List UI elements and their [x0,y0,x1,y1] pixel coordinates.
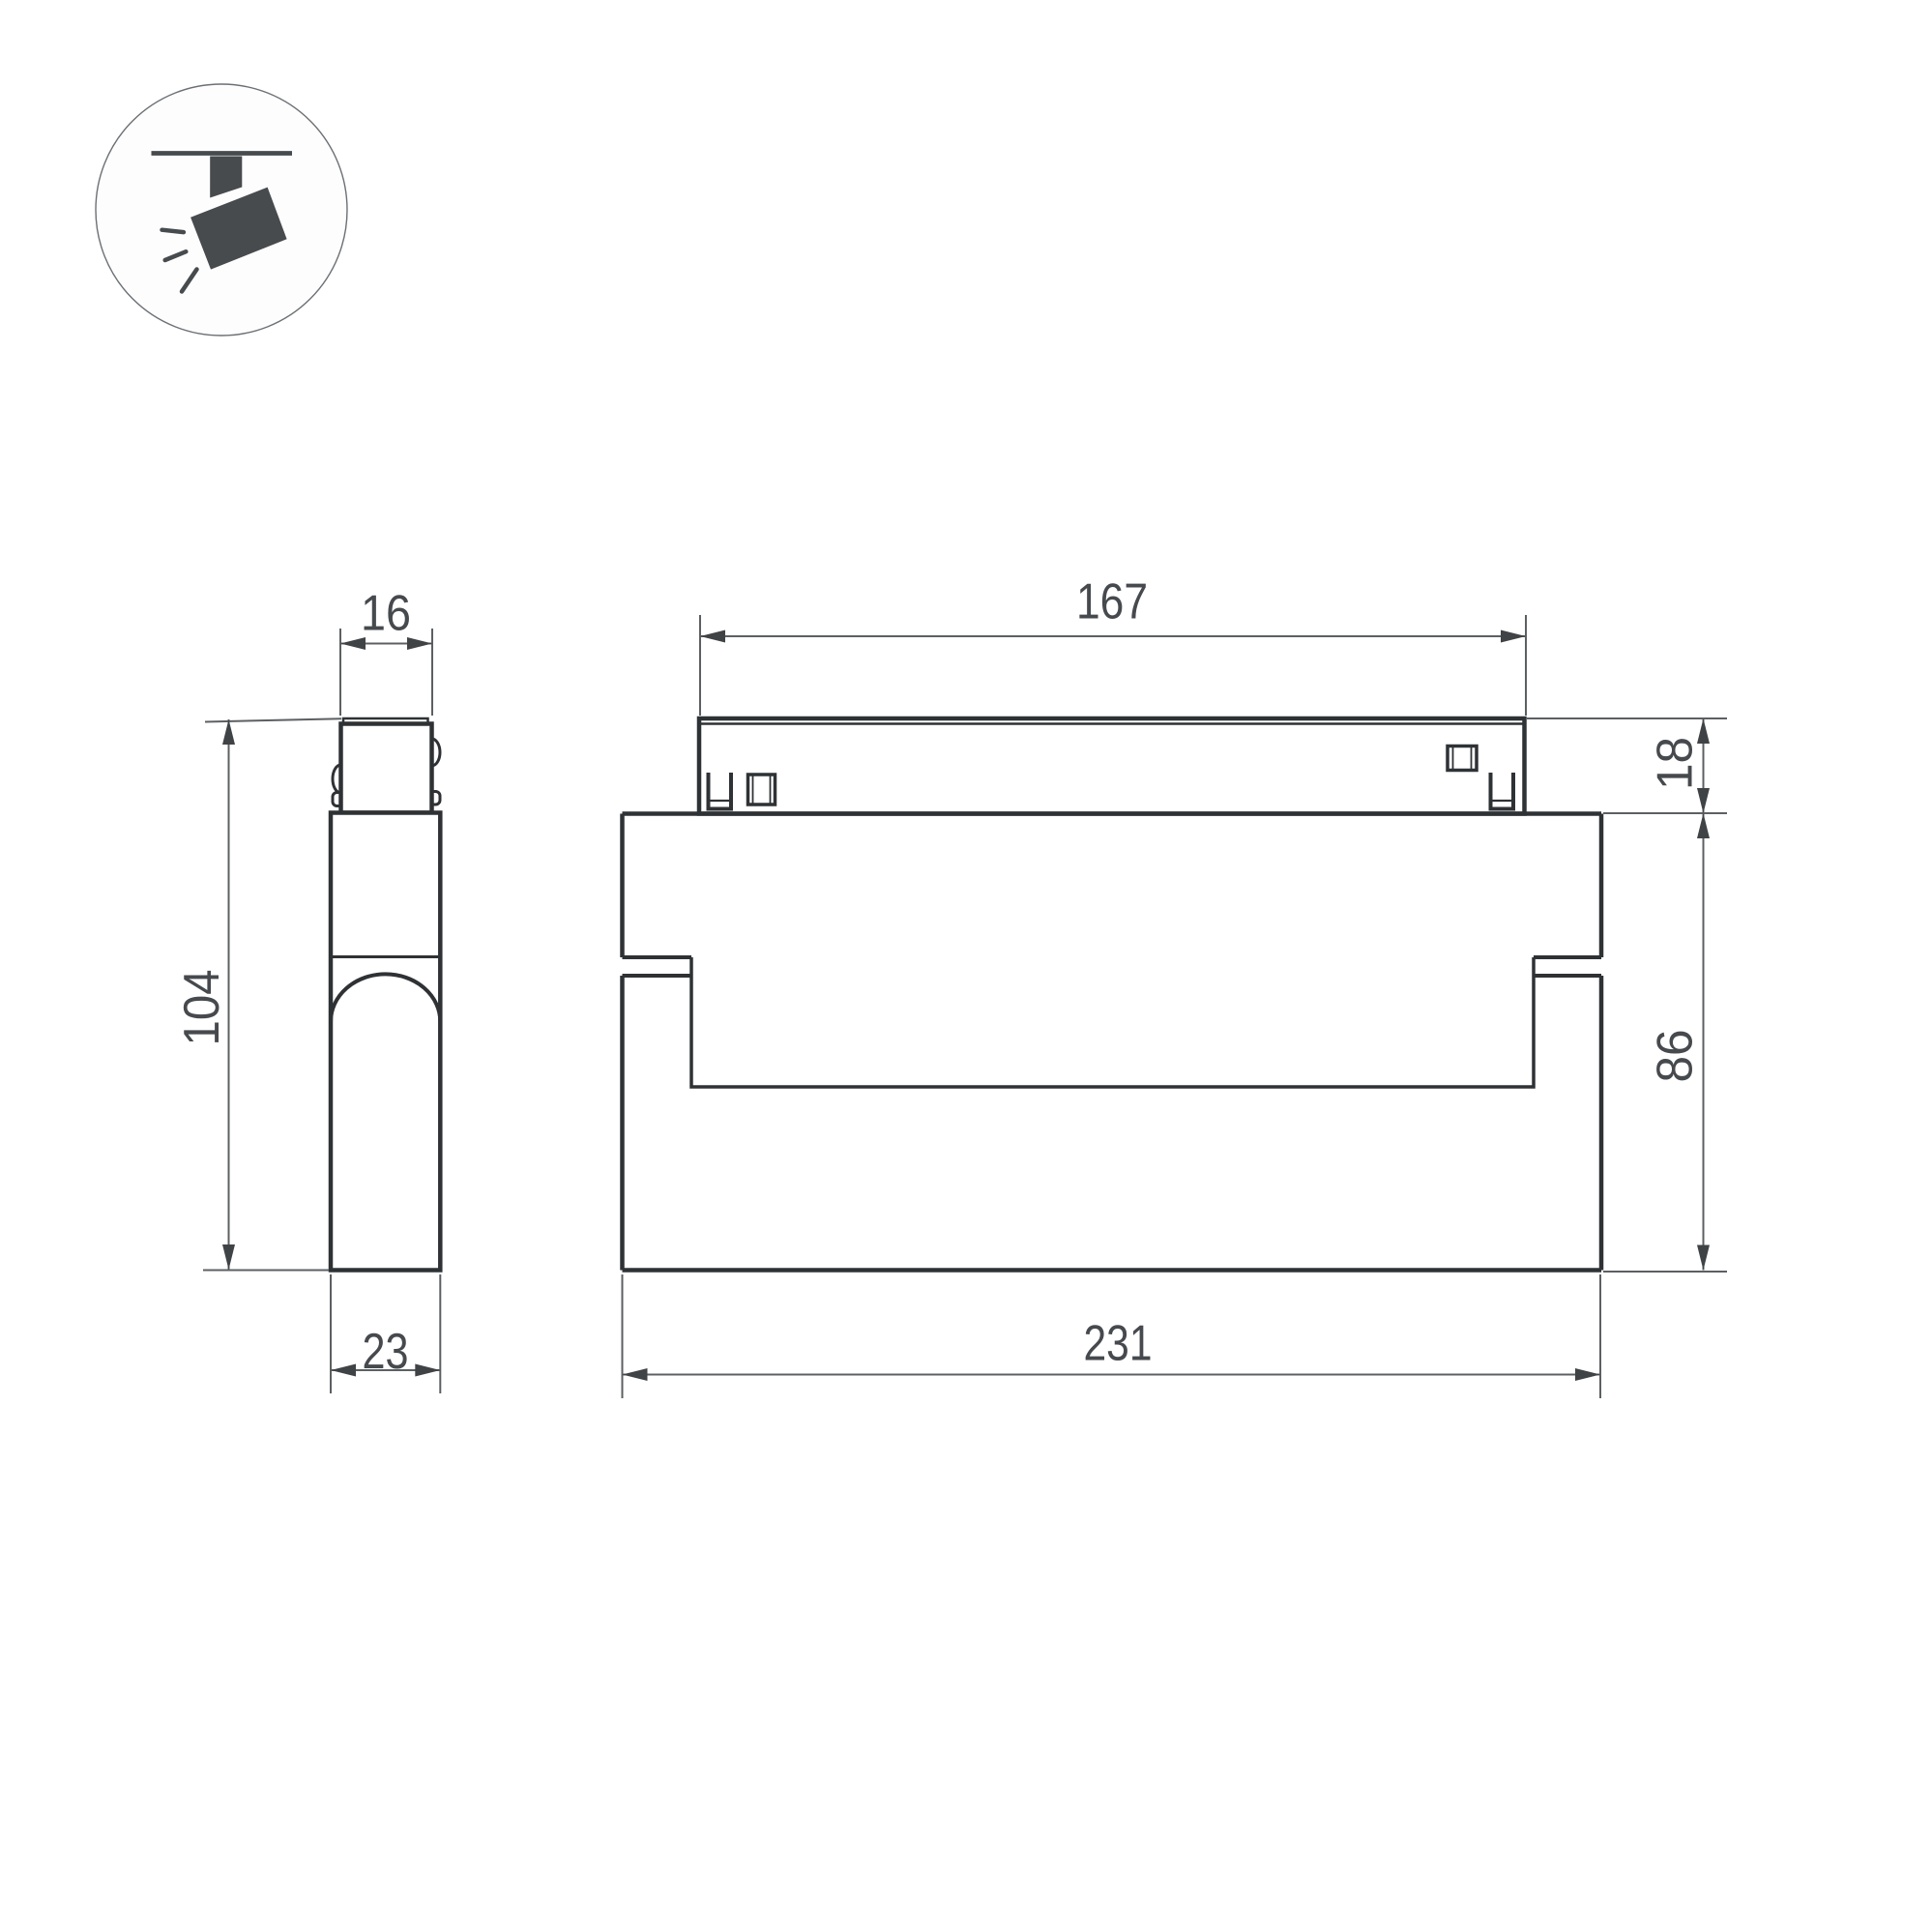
svg-text:16: 16 [361,585,411,641]
svg-text:18: 18 [1647,737,1703,790]
svg-text:231: 231 [1084,1315,1153,1371]
svg-text:23: 23 [363,1323,409,1379]
svg-text:167: 167 [1076,573,1148,629]
svg-text:104: 104 [173,970,229,1046]
svg-text:86: 86 [1647,1030,1703,1083]
